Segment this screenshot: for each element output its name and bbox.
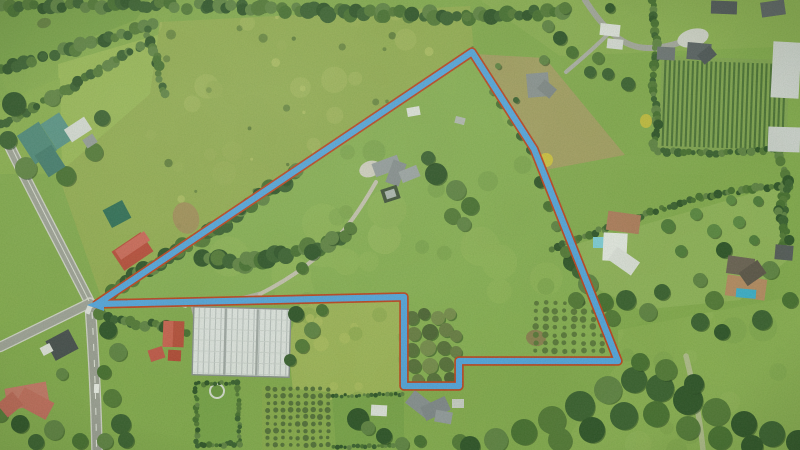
atmosphere-layer: [0, 0, 800, 450]
vignette-overlay: [0, 0, 800, 450]
aerial-scene: [0, 0, 800, 450]
aerial-photo: [0, 0, 800, 450]
